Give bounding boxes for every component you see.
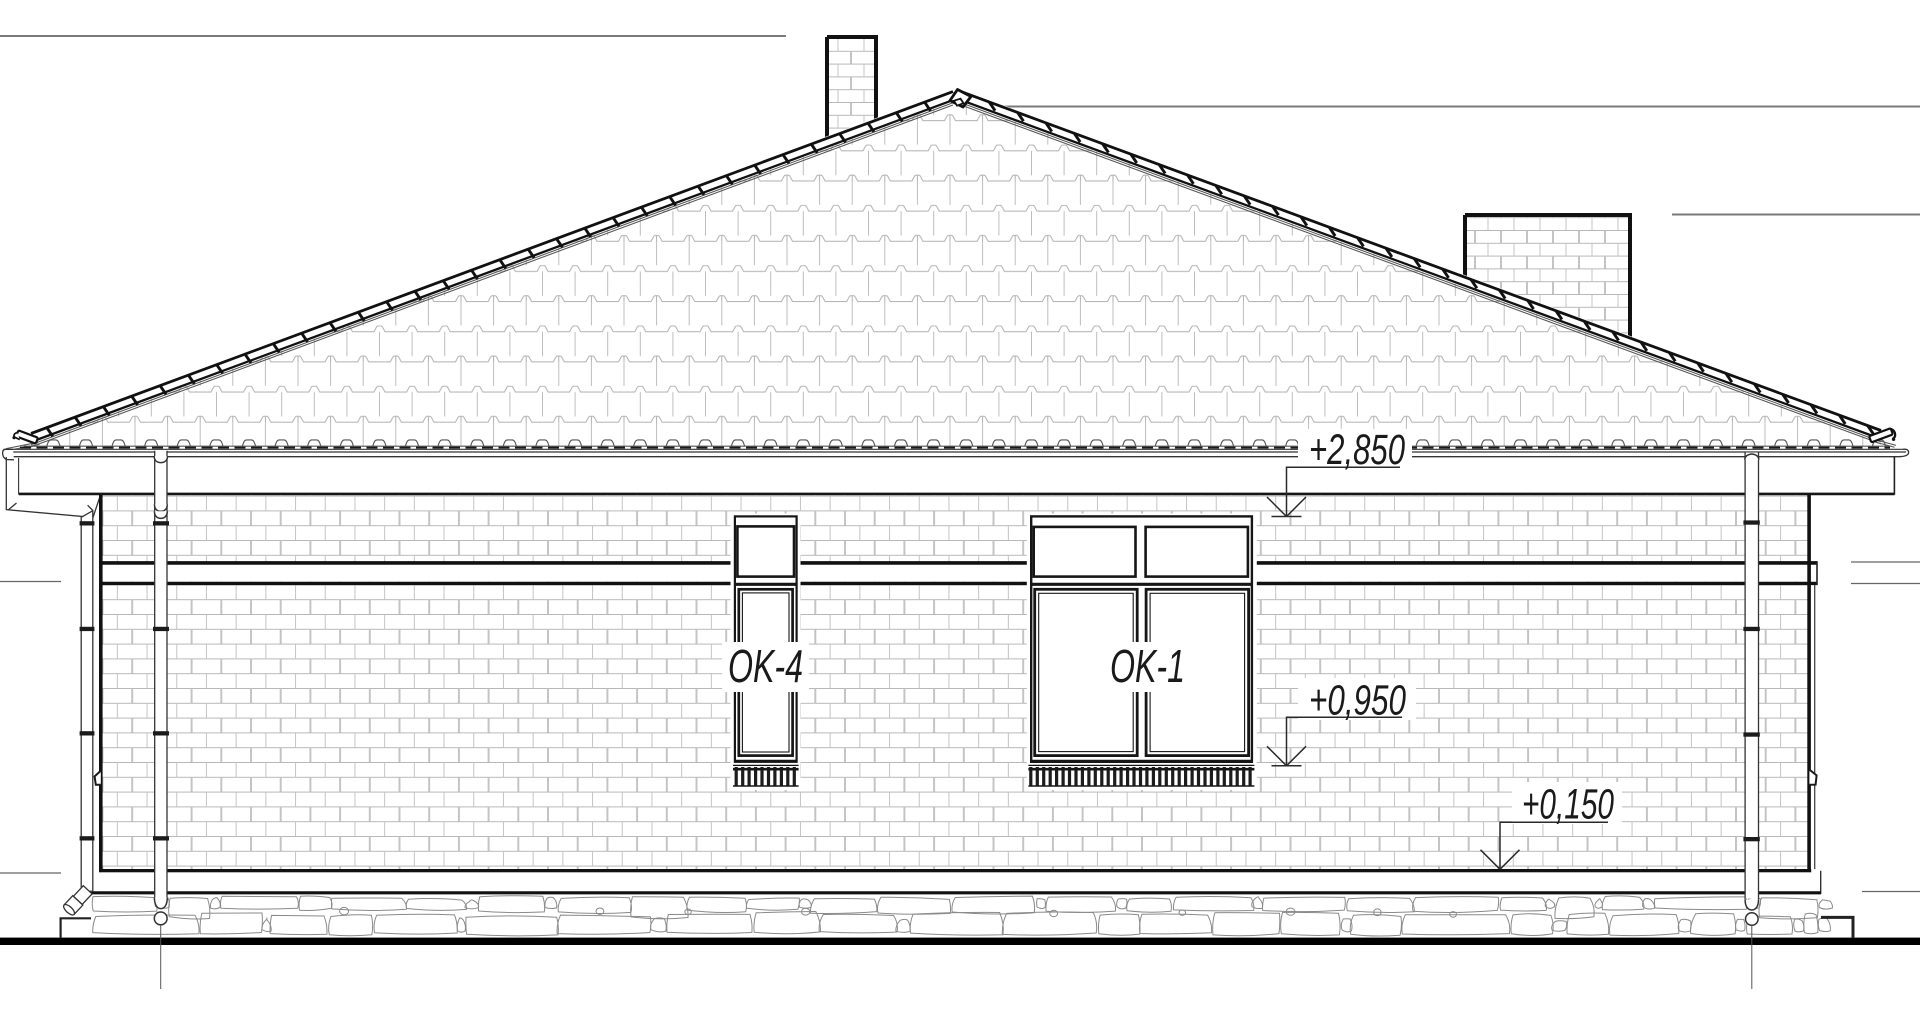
svg-text:+0,150: +0,150 xyxy=(1522,782,1614,829)
svg-text:OK-1: OK-1 xyxy=(1110,640,1185,692)
svg-text:OK-4: OK-4 xyxy=(728,640,803,692)
svg-text:+0,950: +0,950 xyxy=(1309,678,1406,725)
svg-text:+2,850: +2,850 xyxy=(1309,427,1405,474)
